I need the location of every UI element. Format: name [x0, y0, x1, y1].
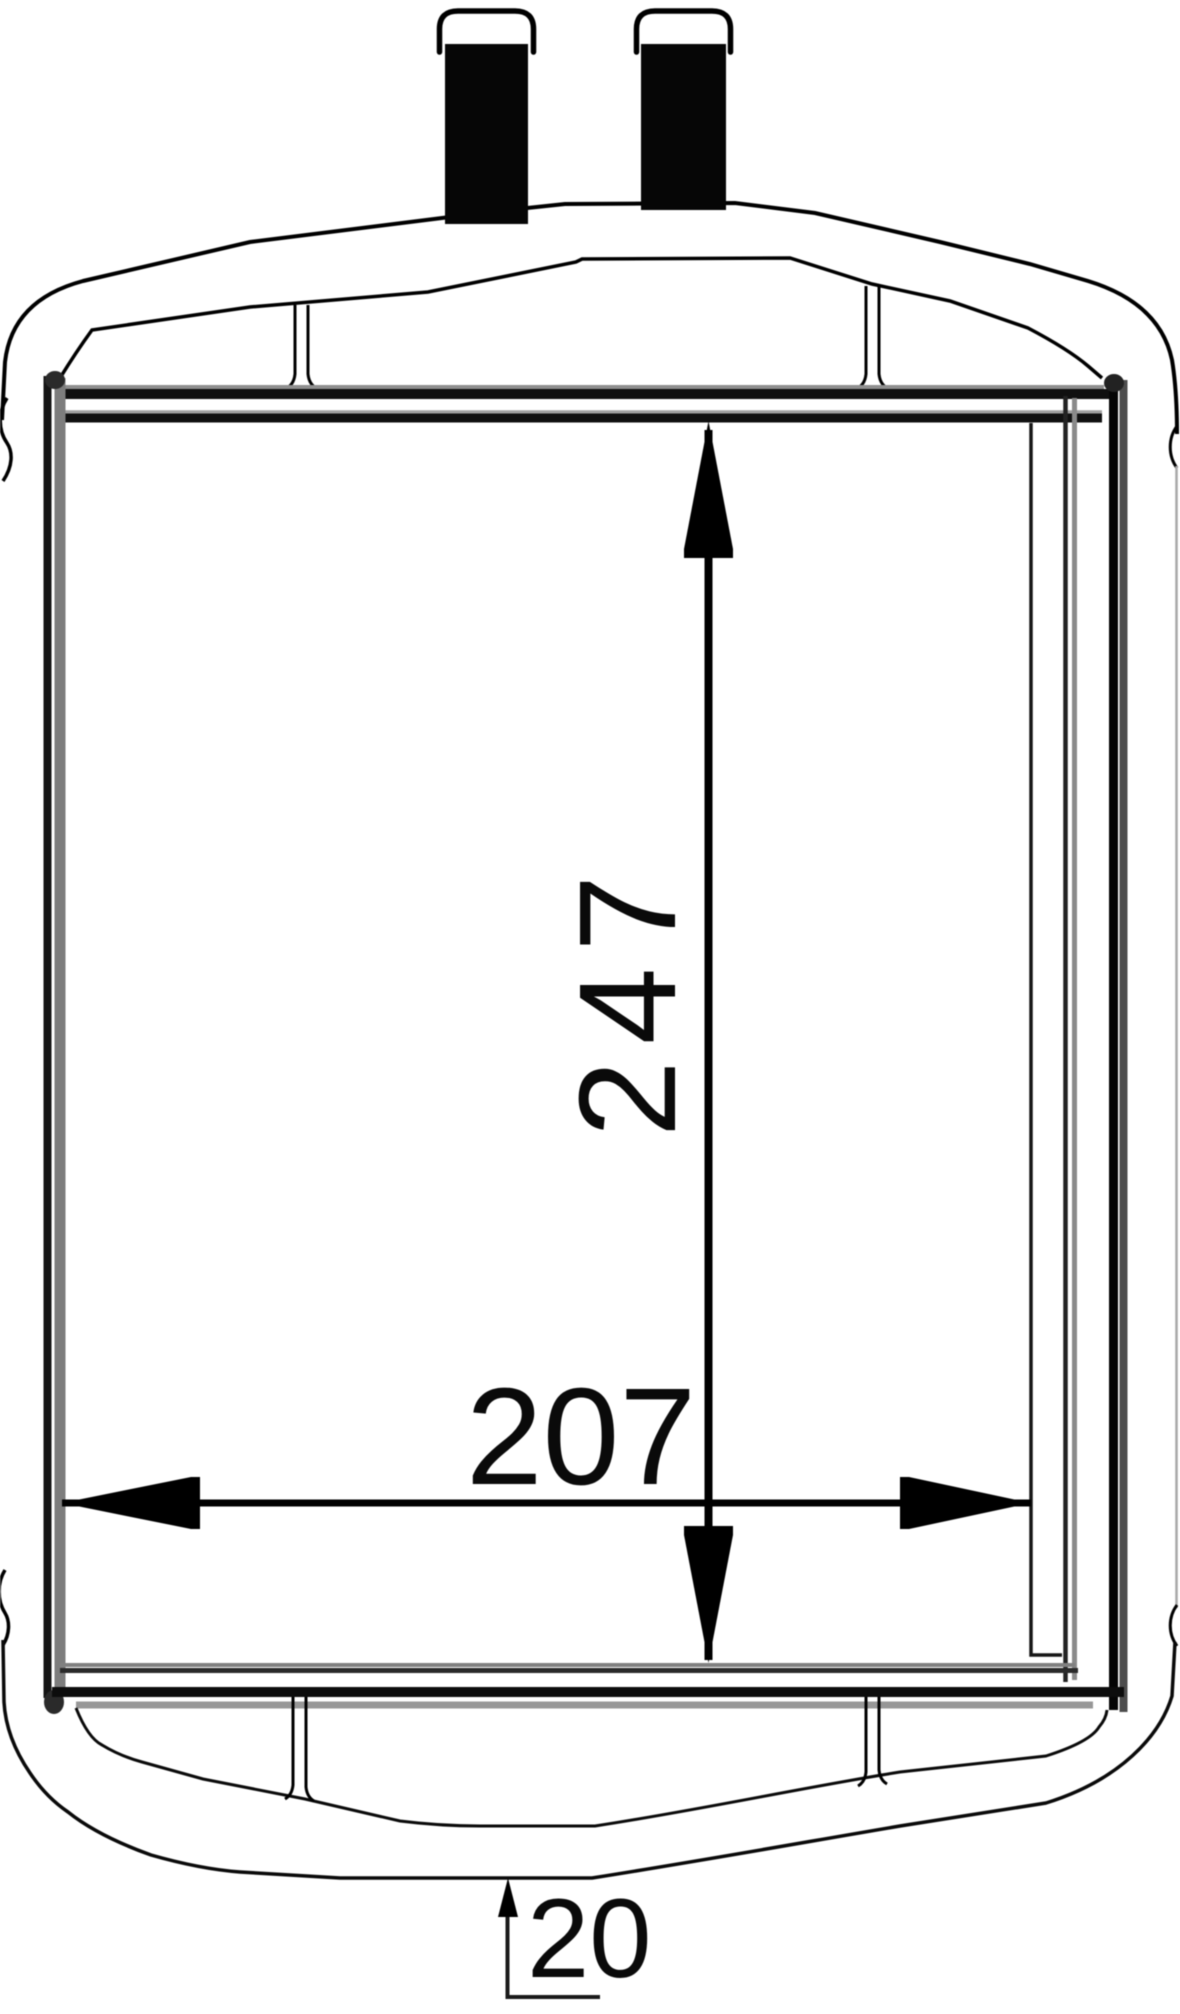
svg-text:247: 247: [551, 859, 705, 1137]
svg-text:20: 20: [527, 1876, 652, 2001]
svg-text:207: 207: [466, 1360, 696, 1514]
